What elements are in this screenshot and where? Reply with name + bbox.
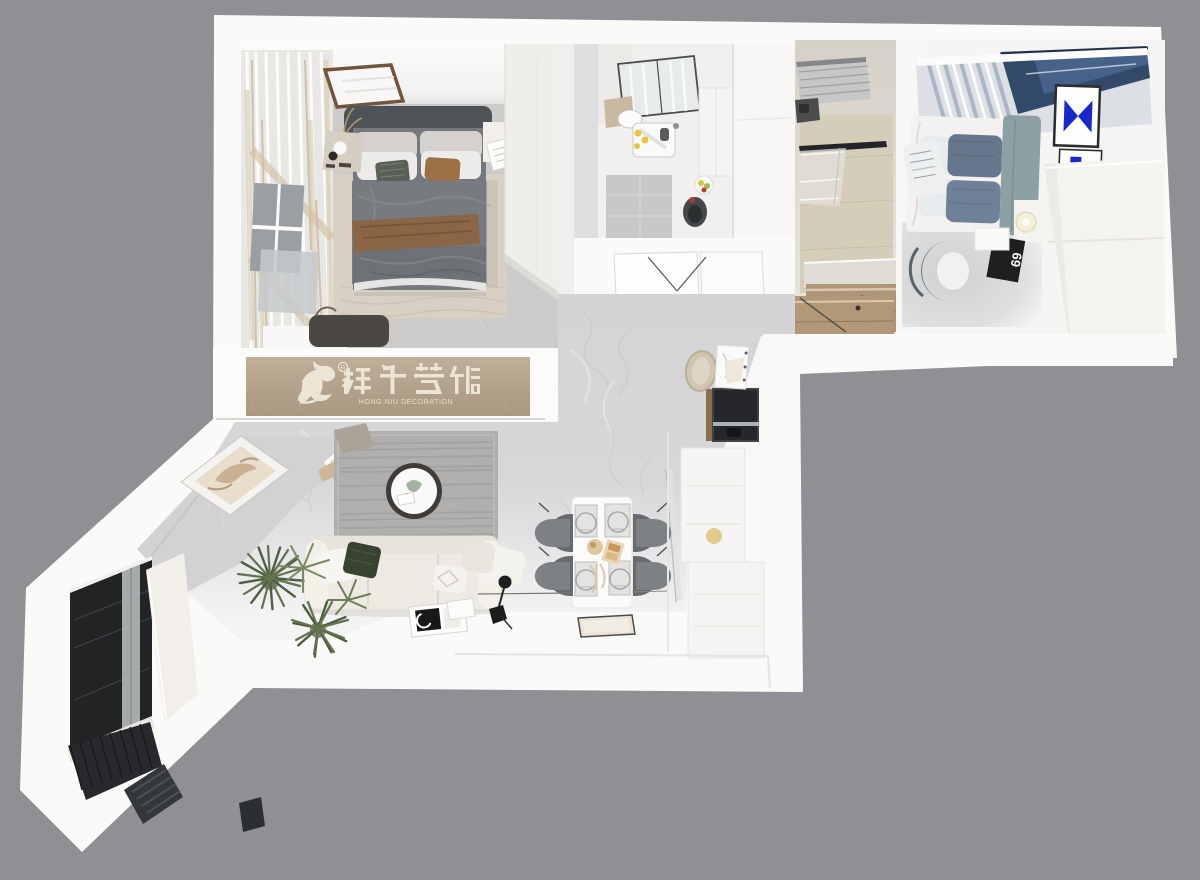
svg-text:R: R (341, 365, 346, 372)
svg-text:69: 69 (1008, 251, 1025, 268)
svg-text:HONG NIU DECORATION: HONG NIU DECORATION (359, 399, 454, 406)
